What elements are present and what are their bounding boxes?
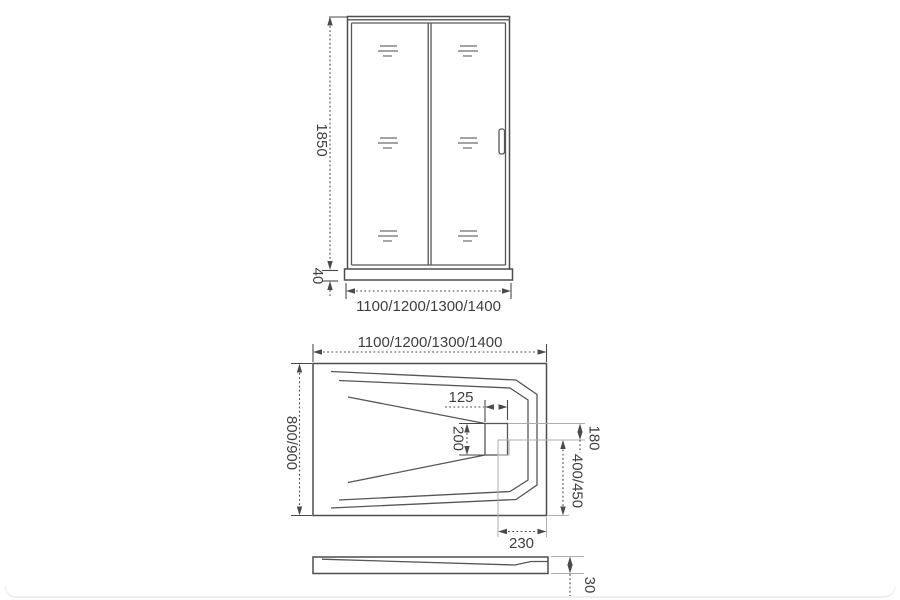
- dim-door-base-label: 40: [309, 268, 326, 285]
- dim-drain-back-offset: 400/450: [548, 440, 586, 516]
- drain-channel: [485, 424, 508, 456]
- dim-tray-width-label: 1100/1200/1300/1400: [358, 334, 503, 351]
- glass-mark: [378, 138, 398, 148]
- dim-tray-height-label: 30: [581, 577, 598, 594]
- glass-mark: [458, 138, 478, 148]
- dim-drain-back-offset-label: 400/450: [569, 454, 586, 508]
- dim-tray-width: 1100/1200/1300/1400: [313, 334, 547, 362]
- door-glass-divider: [428, 23, 431, 265]
- technical-drawing: 1850 40 1100/1200/1300/1400 1100/1200/13…: [0, 0, 900, 600]
- tray-slope-bottom: [348, 455, 485, 483]
- dim-door-height: 1850: [313, 17, 347, 271]
- dim-door-base: 40: [309, 268, 338, 297]
- dim-tray-depth: 800/900: [283, 364, 312, 516]
- dim-drain-length-label: 200: [450, 426, 467, 451]
- dim-tray-height: 30: [551, 557, 598, 597]
- glass-mark: [378, 46, 398, 56]
- glass-mark: [458, 46, 478, 56]
- dim-drain-corner-offset: 230: [498, 456, 547, 552]
- tray-profile-slope: [322, 559, 548, 565]
- drawing-svg: 1850 40 1100/1200/1300/1400 1100/1200/13…: [0, 0, 900, 600]
- door-handle: [499, 129, 505, 154]
- tray-side-view: 30: [313, 557, 598, 597]
- dim-drain-side-offset: 180: [508, 424, 603, 454]
- glass-mark: [378, 231, 398, 241]
- dim-door-height-label: 1850: [313, 123, 330, 156]
- dim-drain-length: 200: [450, 424, 485, 456]
- door-track: [345, 269, 513, 280]
- dim-tray-depth-label: 800/900: [283, 416, 300, 470]
- glass-mark: [458, 231, 478, 241]
- dim-drain-side-offset-label: 180: [586, 425, 603, 450]
- tray-top-view: 1100/1200/1300/1400 800/900: [283, 334, 603, 552]
- dim-door-width: 1100/1200/1300/1400: [346, 283, 511, 315]
- dim-drain-width-label: 125: [448, 389, 473, 406]
- dim-drain-corner-offset-label: 230: [509, 535, 534, 552]
- door-front-view: 1850 40 1100/1200/1300/1400: [309, 16, 513, 315]
- dim-door-width-label: 1100/1200/1300/1400: [356, 298, 501, 315]
